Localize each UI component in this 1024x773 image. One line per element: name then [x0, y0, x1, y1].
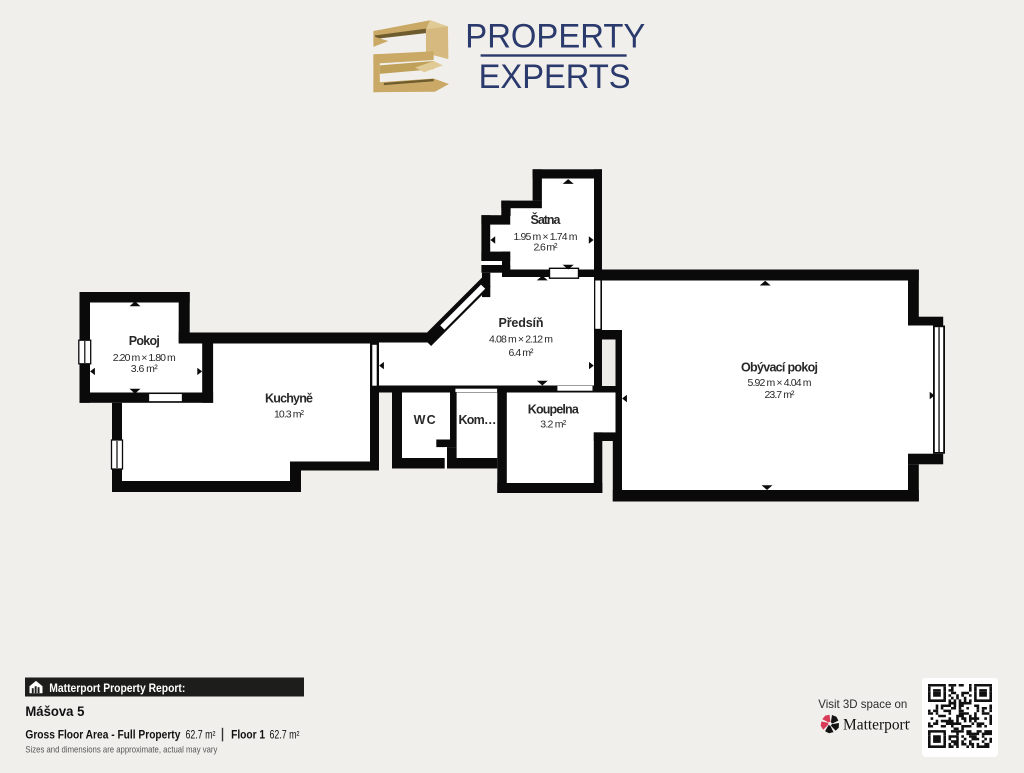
svg-text:Koupelna: Koupelna — [528, 403, 580, 417]
svg-text:WC: WC — [414, 413, 436, 427]
svg-text:Předsíň: Předsíň — [499, 316, 544, 330]
svg-text:3.6 m²: 3.6 m² — [131, 363, 159, 375]
svg-text:23.7 m²: 23.7 m² — [765, 389, 796, 401]
svg-text:Mášova 5: Mášova 5 — [25, 703, 84, 719]
svg-text:Matterport Property Report:: Matterport Property Report: — [49, 683, 185, 695]
svg-text:EXPERTS: EXPERTS — [479, 58, 631, 96]
svg-text:2.6 m²: 2.6 m² — [534, 241, 559, 253]
svg-text:Matterport: Matterport — [843, 717, 910, 734]
svg-text:Gross Floor Area - Full Proper: Gross Floor Area - Full Property — [25, 729, 181, 741]
svg-text:10.3 m²: 10.3 m² — [274, 408, 305, 420]
svg-text:3.2 m²: 3.2 m² — [540, 418, 567, 430]
svg-text:4.08 m × 2.12 m: 4.08 m × 2.12 m — [489, 334, 553, 346]
svg-text:Obývací pokoj: Obývací pokoj — [741, 361, 818, 375]
svg-text:PROPERTY: PROPERTY — [465, 17, 645, 55]
svg-text:5.92 m × 4.04 m: 5.92 m × 4.04 m — [748, 377, 812, 389]
svg-text:Sizes and dimensions are appro: Sizes and dimensions are approximate, ac… — [25, 745, 217, 756]
svg-text:62.7 m²: 62.7 m² — [270, 729, 300, 741]
svg-text:6.4 m²: 6.4 m² — [509, 347, 535, 359]
svg-text:Šatna: Šatna — [531, 212, 562, 227]
svg-text:Kuchyně: Kuchyně — [265, 391, 313, 405]
svg-text:Visit 3D space on: Visit 3D space on — [818, 697, 907, 711]
svg-text:Kom…: Kom… — [459, 413, 497, 427]
svg-text:Pokoj: Pokoj — [129, 334, 160, 348]
svg-text:Floor 1: Floor 1 — [231, 729, 266, 741]
svg-text:62.7 m²: 62.7 m² — [186, 729, 216, 741]
